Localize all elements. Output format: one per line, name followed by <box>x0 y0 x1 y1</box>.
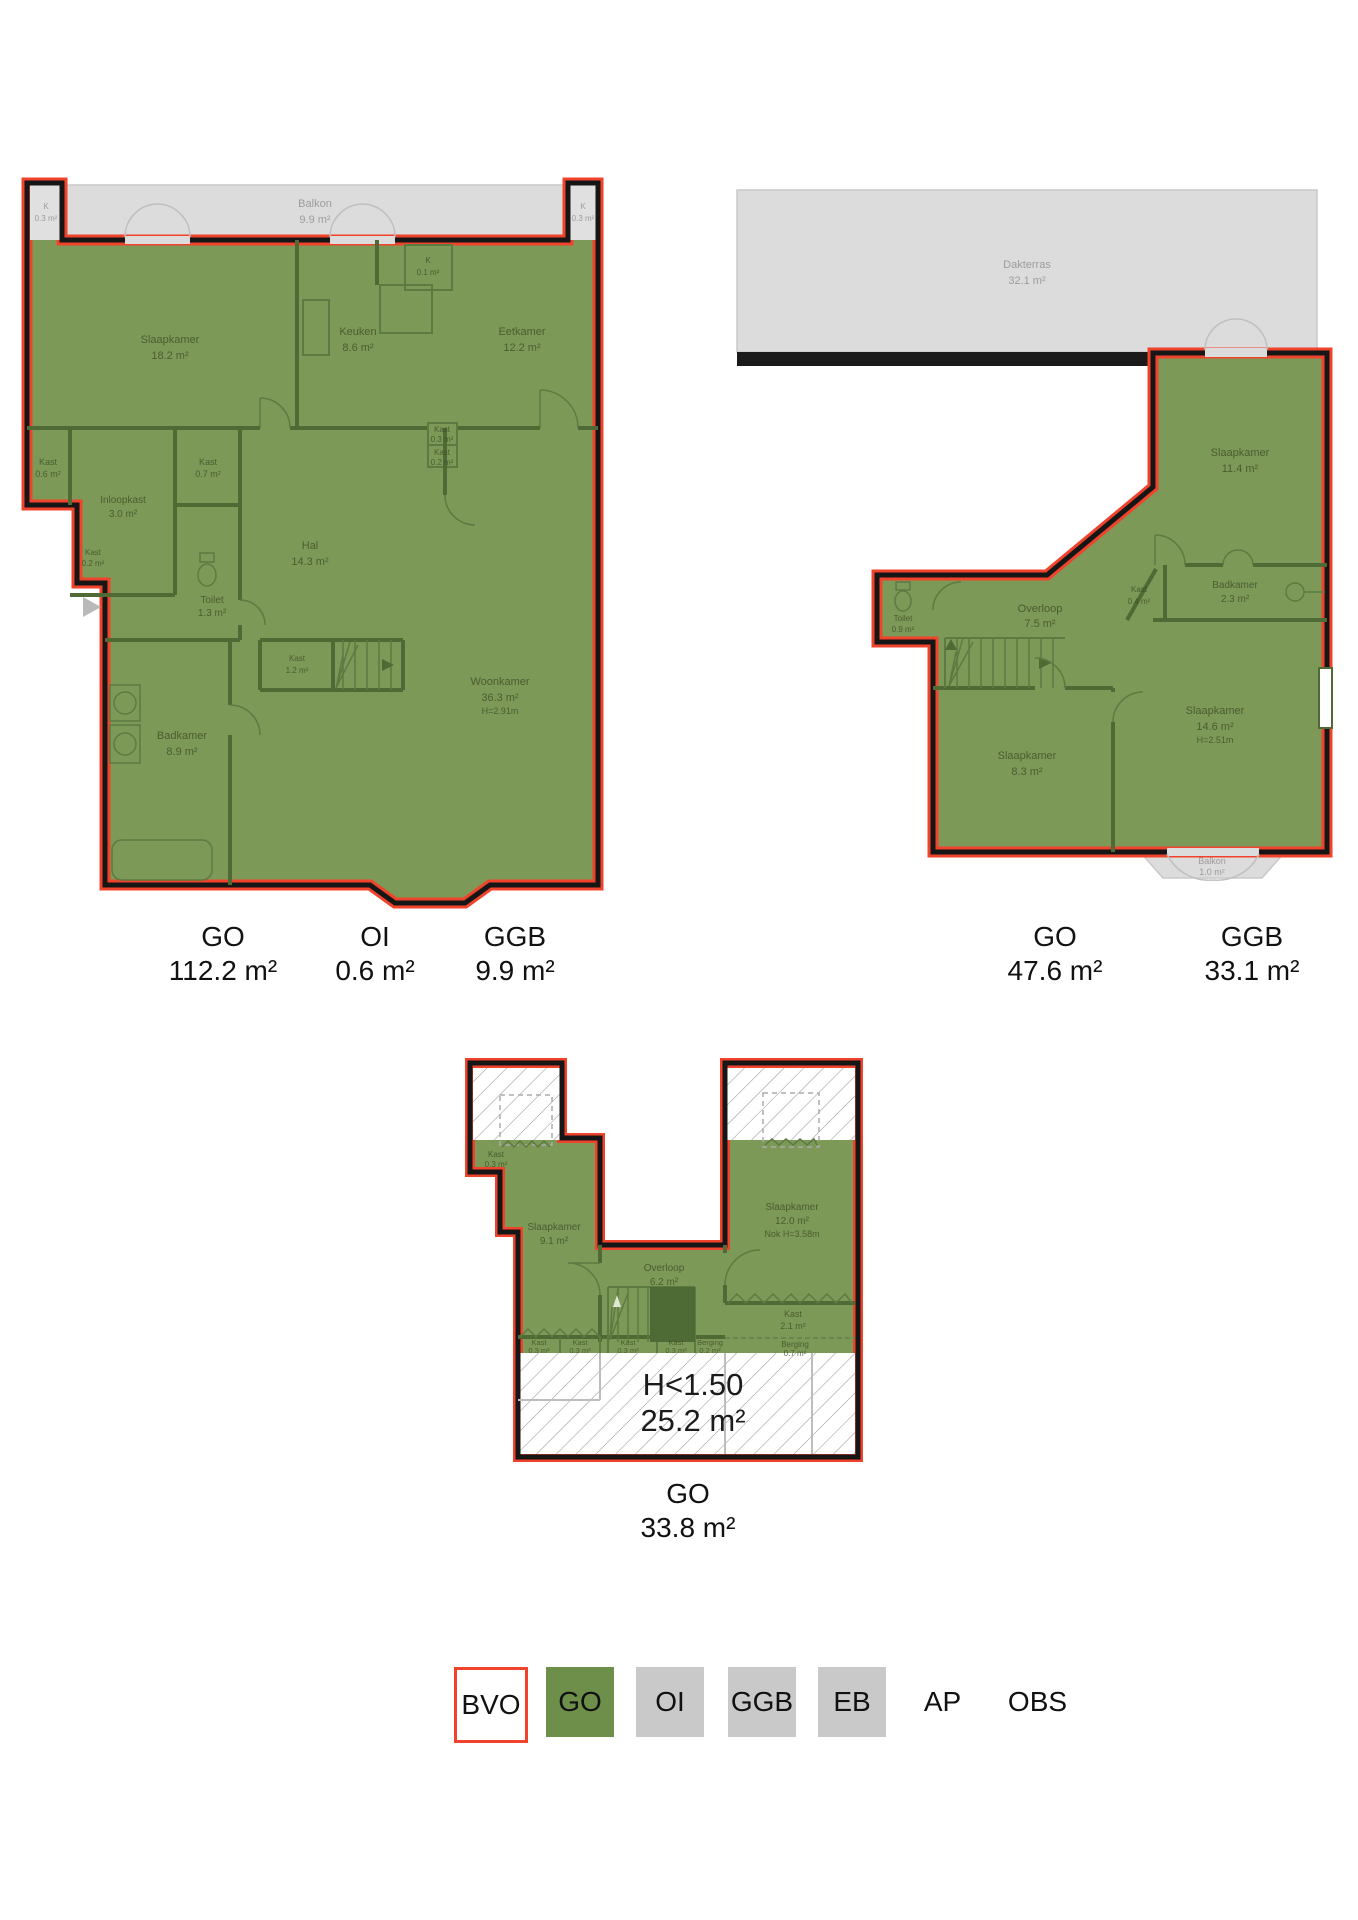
plan2-slaapkamer146-label: Slaapkamer <box>1186 705 1245 717</box>
plan1-kast07-label: Kast <box>199 457 218 467</box>
svg-text:0.3 m²: 0.3 m² <box>485 1160 508 1169</box>
plan3-berging07-label: Berging <box>781 1340 809 1349</box>
floorplan-2: Dakterras 32.1 m² Slaapkamer 11.4 m² Toi… <box>735 180 1335 890</box>
svg-text:6.2 m²: 6.2 m² <box>650 1277 679 1288</box>
entrance-arrow-icon <box>83 597 101 617</box>
svg-text:9.1 m²: 9.1 m² <box>540 1236 569 1247</box>
plan2-dakterras-wall <box>737 352 1153 366</box>
svg-text:0.2 m²: 0.2 m² <box>699 1346 721 1355</box>
plan1-measure-oi: OI 0.6 m² <box>295 920 455 988</box>
svg-text:1.2 m²: 1.2 m² <box>286 666 309 675</box>
plan1-badkamer-label: Badkamer <box>157 730 207 742</box>
svg-text:0.2 m²: 0.2 m² <box>82 559 105 568</box>
svg-text:0.3 m²: 0.3 m² <box>431 435 454 444</box>
legend-item-obs: OBS <box>995 1667 1080 1737</box>
svg-text:7.5 m²: 7.5 m² <box>1024 618 1056 630</box>
plan1-toilet-label: Toilet <box>200 595 224 606</box>
legend-item-ggb: GGB <box>728 1667 796 1737</box>
plan2-slaapkamer83-label: Slaapkamer <box>998 750 1057 762</box>
svg-text:18.2 m²: 18.2 m² <box>151 350 189 362</box>
legend-item-bvo: BVO <box>454 1667 528 1743</box>
plan1-inloopkast-label: Inloopkast <box>100 495 146 506</box>
svg-text:Nok H=3.58m: Nok H=3.58m <box>764 1229 819 1239</box>
legend-item-oi: OI <box>636 1667 704 1737</box>
floorplan-2-drawing: Dakterras 32.1 m² Slaapkamer 11.4 m² Toi… <box>735 180 1335 890</box>
plan2-balkon-label: Balkon <box>1198 856 1226 866</box>
floorplan-1: Balkon 9.9 m² K 0.3 m² K 0.3 m² Slaapkam… <box>20 145 605 910</box>
floorplan-3: Kast 0.3 m² Slaapkamer 9.1 m² Overloop 6… <box>460 1055 870 1465</box>
plan1-kast03-label: Kast <box>434 425 451 434</box>
plan3-low-height-label: H<1.50 <box>643 1367 744 1402</box>
plan2-window-icon <box>1319 668 1332 728</box>
svg-text:8.3 m²: 8.3 m² <box>1011 766 1043 778</box>
svg-text:36.3 m²: 36.3 m² <box>481 692 519 704</box>
plan1-k-right-area <box>568 183 598 240</box>
svg-text:12.2 m²: 12.2 m² <box>503 342 541 354</box>
svg-text:H=2.91m: H=2.91m <box>482 706 519 716</box>
svg-text:0.6 m²: 0.6 m² <box>35 469 61 479</box>
plan2-measure-ggb: GGB 33.1 m² <box>1172 920 1332 988</box>
plan3-slaapkamer120-label: Slaapkamer <box>765 1202 819 1213</box>
svg-text:11.4 m²: 11.4 m² <box>1222 463 1259 475</box>
floorplan-1-drawing: Balkon 9.9 m² K 0.3 m² K 0.3 m² Slaapkam… <box>20 145 605 910</box>
plan1-measure-go: GO 112.2 m² <box>143 920 303 988</box>
legend-item-eb: EB <box>818 1667 886 1737</box>
plan1-kast02-label: Kast <box>434 448 451 457</box>
plan1-hal-label: Hal <box>302 540 319 552</box>
plan2-measure-go: GO 47.6 m² <box>975 920 1135 988</box>
svg-text:8.9 m²: 8.9 m² <box>166 746 198 758</box>
plan3-kast03tl-label: Kast <box>488 1150 505 1159</box>
svg-text:0.7 m²: 0.7 m² <box>784 1349 807 1358</box>
plan1-kast06-label: Kast <box>39 457 58 467</box>
svg-text:0.2 m²: 0.2 m² <box>431 458 454 467</box>
plan3-overloop-label: Overloop <box>644 1263 685 1274</box>
svg-text:2.3 m²: 2.3 m² <box>1221 594 1250 605</box>
svg-text:2.1 m²: 2.1 m² <box>780 1321 806 1331</box>
svg-text:0.7 m²: 0.7 m² <box>195 469 221 479</box>
plan2-dakterras-area <box>737 190 1317 352</box>
svg-text:H=2.51m: H=2.51m <box>1197 735 1234 745</box>
svg-text:1.0 m²: 1.0 m² <box>1199 867 1225 877</box>
plan1-balkon-label: Balkon <box>298 198 332 210</box>
plan1-kast12-label: Kast <box>289 654 306 663</box>
svg-text:32.1 m²: 32.1 m² <box>1008 275 1046 287</box>
plan1-keuken-label: Keuken <box>339 326 376 338</box>
plan1-balkon-area <box>62 185 568 240</box>
legend-item-ap: AP <box>905 1667 980 1737</box>
plan3-kast21-label: Kast <box>784 1309 803 1319</box>
svg-text:0.3 m²: 0.3 m² <box>528 1346 550 1355</box>
plan1-slaapkamer-label: Slaapkamer <box>141 334 200 346</box>
svg-text:0.3 m²: 0.3 m² <box>617 1346 639 1355</box>
plan1-k-right-label: K <box>580 202 586 211</box>
plan2-slaapkamer114-label: Slaapkamer <box>1211 447 1270 459</box>
svg-text:0.3 m²: 0.3 m² <box>569 1346 591 1355</box>
svg-text:3.0 m²: 3.0 m² <box>109 509 138 520</box>
plan1-kast02left-label: Kast <box>85 548 102 557</box>
plan2-dakterras-label: Dakterras <box>1003 259 1051 271</box>
svg-text:8.6 m²: 8.6 m² <box>342 342 374 354</box>
plan1-k01-label: K <box>425 256 431 265</box>
plan1-measure-ggb: GGB 9.9 m² <box>435 920 595 988</box>
plan1-woonkamer-label: Woonkamer <box>470 676 529 688</box>
svg-text:0.1 m²: 0.1 m² <box>417 268 440 277</box>
plan3-measure-go: GO 33.8 m² <box>608 1477 768 1545</box>
plan2-toilet-label: Toilet <box>894 614 913 623</box>
plan3-slaapkamer91-label: Slaapkamer <box>527 1222 581 1233</box>
plan1-eetkamer-label: Eetkamer <box>498 326 545 338</box>
plan2-overloop-label: Overloop <box>1018 603 1063 615</box>
floorplan-3-drawing: Kast 0.3 m² Slaapkamer 9.1 m² Overloop 6… <box>460 1055 870 1465</box>
svg-text:25.2 m²: 25.2 m² <box>640 1403 745 1438</box>
svg-text:1.3 m²: 1.3 m² <box>198 608 227 619</box>
svg-text:12.0 m²: 12.0 m² <box>775 1216 810 1227</box>
legend-item-go: GO <box>546 1667 614 1737</box>
plan1-k-left-area <box>30 183 62 240</box>
svg-text:0.4 m²: 0.4 m² <box>1128 597 1151 606</box>
plan2-kast04-label: Kast <box>1131 585 1148 594</box>
plan2-bvo-outline <box>877 353 1327 852</box>
svg-text:0.3 m²: 0.3 m² <box>572 214 595 223</box>
svg-text:0.9 m²: 0.9 m² <box>892 625 915 634</box>
svg-text:14.6 m²: 14.6 m² <box>1196 721 1234 733</box>
plan1-k-left-label: K <box>43 202 49 211</box>
svg-text:0.3 m²: 0.3 m² <box>35 214 58 223</box>
floorplan-sheet: Balkon 9.9 m² K 0.3 m² K 0.3 m² Slaapkam… <box>0 0 1358 1920</box>
plan2-badkamer-label: Badkamer <box>1212 580 1258 591</box>
svg-text:0.3 m²: 0.3 m² <box>665 1346 687 1355</box>
svg-text:9.9 m²: 9.9 m² <box>299 214 331 226</box>
svg-text:14.3 m²: 14.3 m² <box>291 556 329 568</box>
